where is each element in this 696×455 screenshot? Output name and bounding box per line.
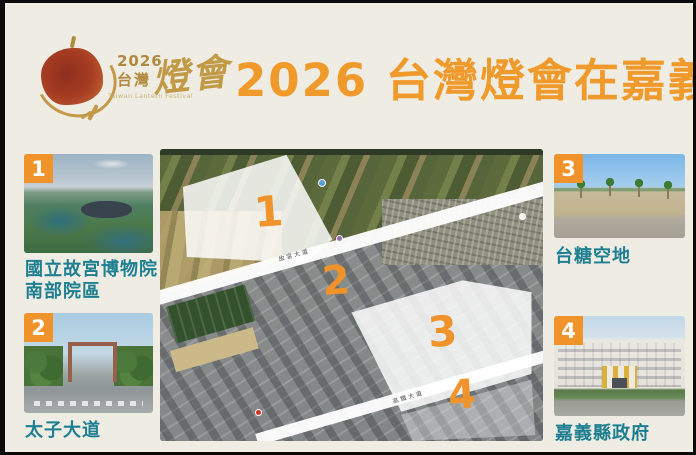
satellite-map: 故宮大道 高鐵大道 1 2 3 4 [160,149,543,441]
location-label-3: 台糖空地 [555,242,631,268]
palm-tree-shape [638,185,640,197]
tree-shape [114,346,153,386]
logo-subtitle: Taiwan Lantern Festival [108,92,193,100]
photo-museum-aerial: 1 [24,154,153,253]
location-label-4: 嘉義縣政府 [555,419,650,445]
logo-region: 台灣 [117,69,151,90]
lantern-icon [41,48,103,105]
map-marker-1: 1 [253,190,285,234]
palm-tree-shape [609,184,611,196]
photo-county-government: 4 [554,316,685,416]
poi-marker-icon [255,409,262,416]
palm-tree-shape [667,187,669,199]
location-badge-3: 3 [554,154,583,183]
gateway-arch-shape [68,342,117,382]
museum-building-shape [81,201,133,219]
location-label-2: 太子大道 [25,416,101,442]
lantern-festival-poster: 2026 台灣 燈會 Taiwan Lantern Festival 2026 … [0,0,696,455]
page-title: 2026 台灣燈會在嘉義 [235,44,696,109]
map-marker-4: 4 [447,374,478,416]
location-badge-1: 1 [24,154,53,183]
location-label-1-line2: 南部院區 [25,277,101,303]
poi-icon [519,213,526,220]
poi-icon [318,179,326,187]
location-badge-4: 4 [554,316,583,345]
poi-icon [336,235,343,242]
map-marker-3: 3 [427,310,459,354]
map-marker-2: 2 [321,260,352,302]
photo-taisugar-field: 3 [554,154,685,238]
building-entrance-shape [612,378,628,388]
photo-taizi-boulevard: 2 [24,313,153,413]
location-badge-2: 2 [24,313,53,342]
crosswalk-shape [34,401,142,406]
tree-shape [24,346,63,386]
palm-tree-shape [580,186,582,198]
